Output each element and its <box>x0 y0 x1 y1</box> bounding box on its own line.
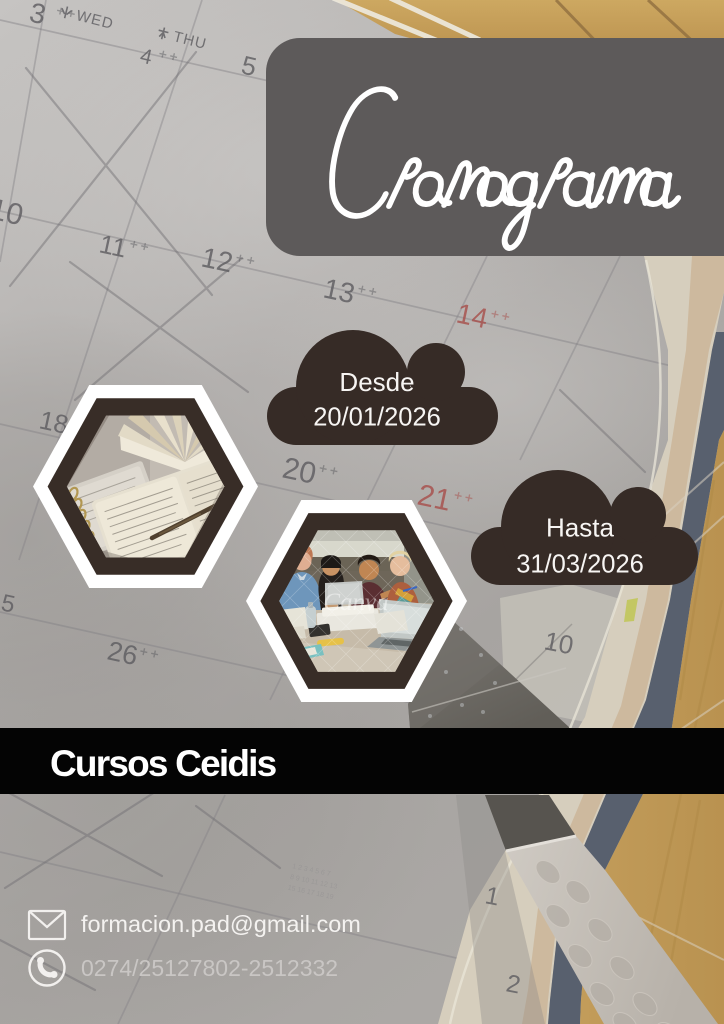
svg-text:20/01/2026: 20/01/2026 <box>313 404 441 432</box>
svg-text:13: 13 <box>321 273 358 310</box>
svg-text:Hasta: Hasta <box>546 513 614 543</box>
svg-text:10: 10 <box>542 625 576 660</box>
svg-text:0274/25127802-2512332: 0274/25127802-2512332 <box>81 955 338 981</box>
svg-text:Desde: Desde <box>339 367 414 397</box>
svg-text:31/03/2026: 31/03/2026 <box>516 551 644 579</box>
svg-text:formacion.pad@gmail.com: formacion.pad@gmail.com <box>81 911 361 937</box>
svg-text:14: 14 <box>454 298 491 335</box>
svg-text:12: 12 <box>199 242 236 279</box>
svg-text:Cursos Ceidis: Cursos Ceidis <box>50 743 277 784</box>
svg-text:26: 26 <box>105 636 141 672</box>
svg-text:21: 21 <box>415 479 455 518</box>
svg-text:20: 20 <box>280 452 320 491</box>
